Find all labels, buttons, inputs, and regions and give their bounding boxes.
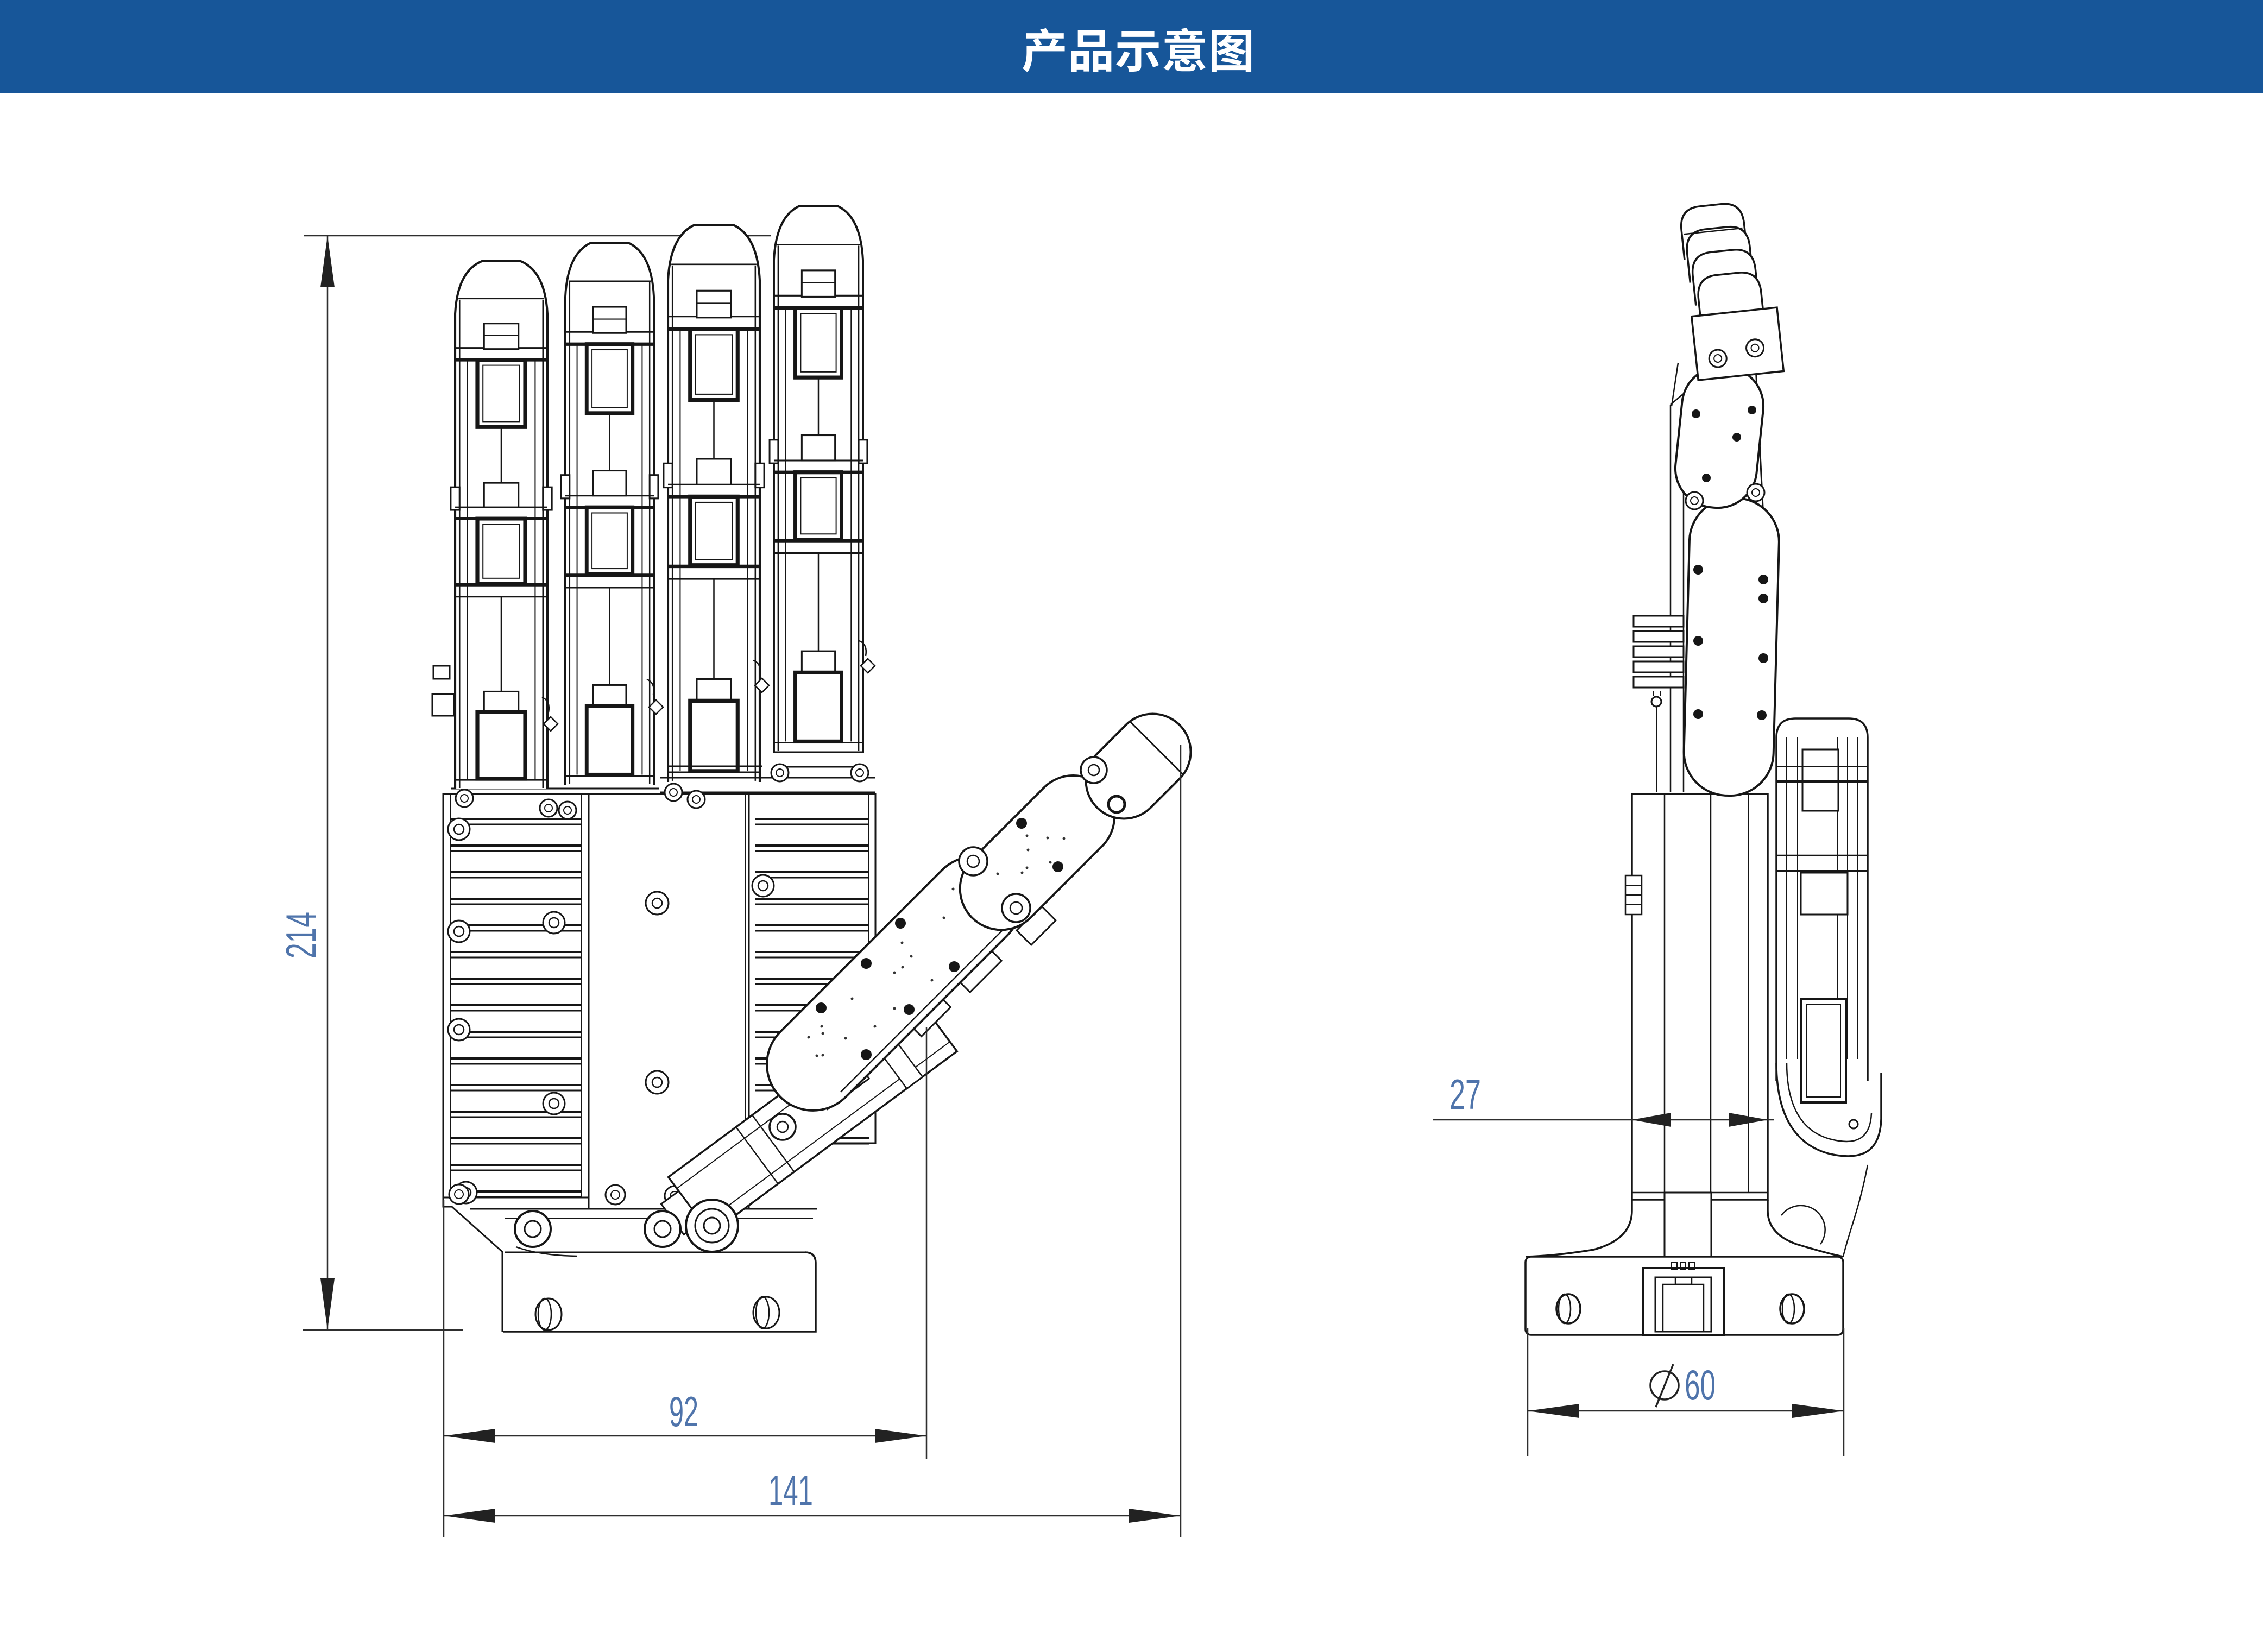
svg-text:60: 60: [1685, 1361, 1716, 1409]
svg-text:27: 27: [1449, 1070, 1481, 1118]
svg-text:141: 141: [768, 1466, 813, 1514]
svg-text:92: 92: [669, 1388, 698, 1435]
svg-text:214: 214: [277, 912, 325, 959]
